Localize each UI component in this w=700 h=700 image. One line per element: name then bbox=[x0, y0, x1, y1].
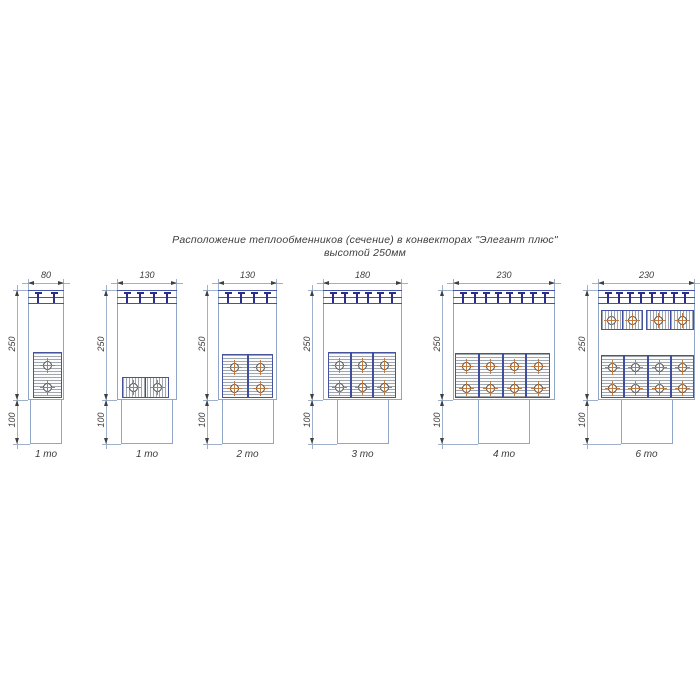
grille-tee-icon bbox=[332, 294, 334, 303]
grille-tee-icon bbox=[391, 294, 393, 303]
height-dimension-line bbox=[587, 285, 588, 449]
grille-tee-icon bbox=[521, 294, 523, 303]
grille-tee-icon bbox=[618, 294, 620, 303]
dimension-arrow bbox=[117, 281, 123, 285]
extension-line bbox=[13, 444, 30, 445]
block-divider bbox=[622, 310, 623, 330]
tube-cross-v bbox=[47, 380, 48, 395]
extension-line bbox=[583, 444, 621, 445]
grille-top-edge bbox=[218, 290, 277, 291]
grille-tee-icon bbox=[651, 294, 653, 303]
duct bbox=[337, 400, 389, 444]
dimension-arrow bbox=[453, 281, 459, 285]
grille-tee-icon bbox=[166, 294, 168, 303]
dimension-arrow bbox=[205, 290, 209, 296]
diagrams-layer: 802501001 то1302501001 то1302501002 то18… bbox=[0, 0, 700, 700]
grille-tee-icon bbox=[640, 294, 642, 303]
extension-line bbox=[203, 444, 222, 445]
tube-cross-v bbox=[659, 360, 660, 375]
width-dimension-label: 230 bbox=[479, 270, 529, 280]
tube-cross-v bbox=[632, 313, 633, 328]
tube-cross-v bbox=[234, 381, 235, 396]
dimension-arrow bbox=[205, 438, 209, 444]
diagram-label: 6 то bbox=[617, 449, 677, 460]
width-dimension-line bbox=[592, 283, 700, 284]
height-dimension-label: 250 bbox=[197, 329, 207, 359]
grille-tee-icon bbox=[662, 294, 664, 303]
extension-line bbox=[438, 444, 478, 445]
grille-tee-icon bbox=[53, 294, 55, 303]
tube-cross-v bbox=[635, 360, 636, 375]
grille-line bbox=[598, 297, 695, 298]
tube-cross-v bbox=[466, 359, 467, 374]
extension-line bbox=[102, 444, 121, 445]
block-divider bbox=[648, 355, 649, 398]
duct-dimension-label: 100 bbox=[302, 405, 312, 435]
tube-cross-v bbox=[339, 358, 340, 373]
tube-cross-v bbox=[612, 360, 613, 375]
dimension-arrow bbox=[689, 281, 695, 285]
height-dimension-line bbox=[17, 285, 18, 449]
diagram-label: 2 то bbox=[218, 449, 278, 460]
grille-top-edge bbox=[323, 290, 402, 291]
grille-tee-icon bbox=[474, 294, 476, 303]
dimension-arrow bbox=[15, 290, 19, 296]
dimension-arrow bbox=[585, 438, 589, 444]
tube-cross-v bbox=[490, 381, 491, 396]
height-dimension-label: 250 bbox=[96, 329, 106, 359]
dimension-arrow bbox=[104, 438, 108, 444]
block-divider bbox=[624, 355, 625, 398]
diagram-label: 1 то bbox=[16, 449, 76, 460]
width-dimension-label: 130 bbox=[223, 270, 273, 280]
diagram-label: 3 то bbox=[333, 449, 393, 460]
tube-cross-v bbox=[362, 380, 363, 395]
grille-tee-icon bbox=[240, 294, 242, 303]
grille-top-edge bbox=[117, 290, 177, 291]
grille-line bbox=[28, 297, 64, 298]
block-divider bbox=[526, 353, 527, 398]
grille-top-edge bbox=[28, 290, 64, 291]
tube-cross-v bbox=[682, 381, 683, 396]
tube-cross-v bbox=[260, 381, 261, 396]
block-divider bbox=[671, 355, 672, 398]
dimension-arrow bbox=[549, 281, 555, 285]
grille-tee-icon bbox=[367, 294, 369, 303]
grille-tee-icon bbox=[607, 294, 609, 303]
height-dimension-line bbox=[207, 285, 208, 449]
tube-cross-v bbox=[538, 359, 539, 374]
duct-dimension-label: 100 bbox=[577, 405, 587, 435]
grille-tee-icon bbox=[684, 294, 686, 303]
grille-tee-icon bbox=[153, 294, 155, 303]
grille-line bbox=[453, 297, 555, 298]
tube-cross-v bbox=[234, 360, 235, 375]
height-dimension-line bbox=[106, 285, 107, 449]
block-divider bbox=[248, 354, 249, 398]
diagram-label: 4 то bbox=[474, 449, 534, 460]
tube-cross-v bbox=[612, 381, 613, 396]
tube-cross-v bbox=[514, 359, 515, 374]
block-divider bbox=[373, 352, 374, 398]
width-dimension-label: 180 bbox=[338, 270, 388, 280]
grille-top-edge bbox=[598, 290, 695, 291]
height-dimension-label: 250 bbox=[302, 329, 312, 359]
duct-dimension-label: 100 bbox=[96, 405, 106, 435]
grille-tee-icon bbox=[509, 294, 511, 303]
tube-cross-v bbox=[682, 360, 683, 375]
height-dimension-label: 250 bbox=[432, 329, 442, 359]
block-divider bbox=[503, 353, 504, 398]
tube-cross-v bbox=[659, 381, 660, 396]
dimension-arrow bbox=[218, 281, 224, 285]
grille-line bbox=[117, 303, 177, 304]
duct-dimension-label: 100 bbox=[432, 405, 442, 435]
tube-cross-v bbox=[362, 358, 363, 373]
tube-cross-v bbox=[490, 359, 491, 374]
height-dimension-label: 250 bbox=[7, 329, 17, 359]
width-dimension-line bbox=[317, 283, 408, 284]
tube-cross-v bbox=[339, 380, 340, 395]
width-dimension-label: 80 bbox=[21, 270, 71, 280]
technical-drawing: Расположение теплообменников (сечение) в… bbox=[0, 0, 700, 700]
grille-tee-icon bbox=[344, 294, 346, 303]
duct bbox=[30, 400, 62, 444]
tube-cross-v bbox=[466, 381, 467, 396]
tube-cross-v bbox=[538, 381, 539, 396]
dimension-arrow bbox=[271, 281, 277, 285]
block-divider bbox=[670, 310, 671, 330]
grille-line bbox=[28, 303, 64, 304]
block-divider bbox=[145, 377, 146, 398]
grille-line bbox=[323, 303, 402, 304]
grille-tee-icon bbox=[37, 294, 39, 303]
tube-cross-v bbox=[635, 381, 636, 396]
tube-cross-v bbox=[514, 381, 515, 396]
grille-line bbox=[598, 303, 695, 304]
tube-cross-v bbox=[658, 313, 659, 328]
duct bbox=[621, 400, 673, 444]
grille-tee-icon bbox=[253, 294, 255, 303]
duct-dimension-label: 100 bbox=[197, 405, 207, 435]
dimension-arrow bbox=[440, 290, 444, 296]
grille-tee-icon bbox=[126, 294, 128, 303]
dimension-arrow bbox=[323, 281, 329, 285]
dimension-arrow bbox=[440, 438, 444, 444]
grille-tee-icon bbox=[379, 294, 381, 303]
duct-dimension-label: 100 bbox=[7, 405, 17, 435]
block-divider bbox=[351, 352, 352, 398]
dimension-arrow bbox=[104, 290, 108, 296]
dimension-arrow bbox=[396, 281, 402, 285]
dimension-arrow bbox=[310, 290, 314, 296]
diagram-label: 1 то bbox=[117, 449, 177, 460]
grille-tee-icon bbox=[139, 294, 141, 303]
tube-cross-v bbox=[611, 313, 612, 328]
height-dimension-line bbox=[312, 285, 313, 449]
dimension-arrow bbox=[598, 281, 604, 285]
tube-cross-v bbox=[260, 360, 261, 375]
grille-tee-icon bbox=[356, 294, 358, 303]
dimension-arrow bbox=[171, 281, 177, 285]
duct bbox=[478, 400, 530, 444]
grille-tee-icon bbox=[532, 294, 534, 303]
dimension-arrow bbox=[310, 438, 314, 444]
grille-top-edge bbox=[453, 290, 555, 291]
height-dimension-line bbox=[442, 285, 443, 449]
grille-tee-icon bbox=[497, 294, 499, 303]
height-dimension-label: 250 bbox=[577, 329, 587, 359]
grille-tee-icon bbox=[462, 294, 464, 303]
grille-tee-icon bbox=[266, 294, 268, 303]
tube-cross-v bbox=[384, 358, 385, 373]
tube-cross-v bbox=[133, 380, 134, 395]
dimension-arrow bbox=[585, 290, 589, 296]
grille-tee-icon bbox=[544, 294, 546, 303]
duct bbox=[121, 400, 173, 444]
dimension-arrow bbox=[58, 281, 64, 285]
grille-line bbox=[453, 303, 555, 304]
grille-line bbox=[218, 303, 277, 304]
width-dimension-label: 130 bbox=[122, 270, 172, 280]
tube-cross-v bbox=[47, 358, 48, 373]
extension-line bbox=[308, 444, 337, 445]
width-dimension-label: 230 bbox=[622, 270, 672, 280]
width-dimension-line bbox=[447, 283, 561, 284]
dimension-arrow bbox=[15, 438, 19, 444]
tube-cross-v bbox=[157, 380, 158, 395]
tube-cross-v bbox=[384, 380, 385, 395]
grille-tee-icon bbox=[629, 294, 631, 303]
grille-tee-icon bbox=[673, 294, 675, 303]
grille-tee-icon bbox=[227, 294, 229, 303]
duct bbox=[222, 400, 274, 444]
grille-tee-icon bbox=[485, 294, 487, 303]
dimension-arrow bbox=[28, 281, 34, 285]
tube-cross-v bbox=[682, 313, 683, 328]
block-divider bbox=[479, 353, 480, 398]
